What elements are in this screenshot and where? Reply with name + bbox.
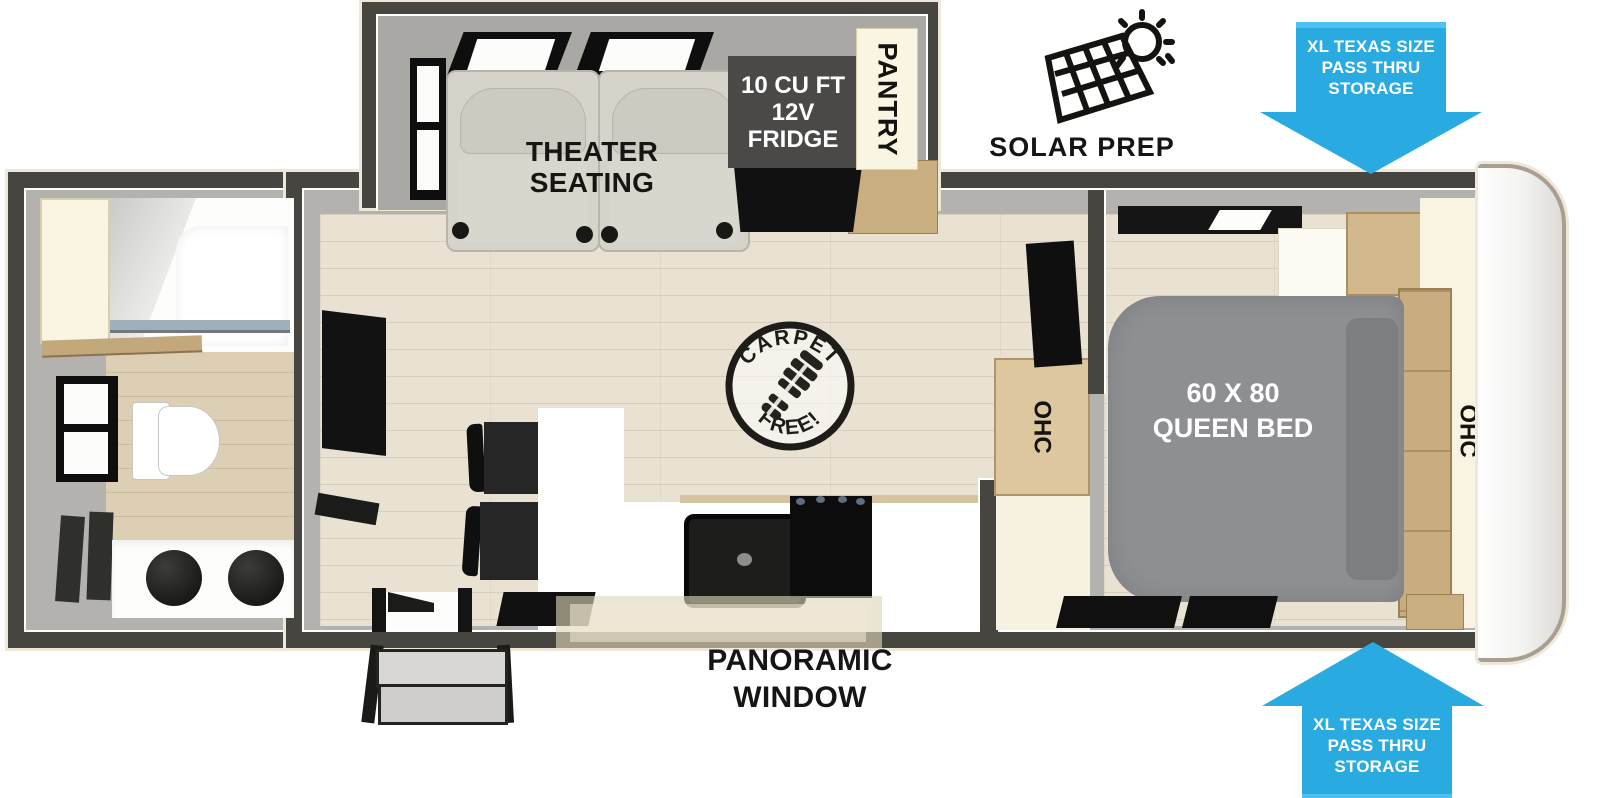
bedroom-bottom-cabinet — [1406, 594, 1464, 630]
bedroom-window — [1182, 596, 1278, 628]
stove — [790, 496, 872, 598]
queen-bed-line1: 60 X 80 — [1108, 376, 1358, 411]
shower — [106, 198, 294, 352]
front-cap — [1478, 164, 1566, 662]
solar-prep-label: SOLAR PREP — [982, 132, 1182, 162]
storage-bottom-line2: PASS THRU — [1302, 735, 1452, 756]
fridge-line1: 10 CU FT — [728, 72, 858, 99]
bedroom-window — [1056, 596, 1182, 628]
panoramic-line1: PANORAMIC — [640, 642, 960, 679]
bathroom-window — [56, 376, 118, 482]
bedroom-wardrobe — [1398, 288, 1452, 618]
dinette-chair — [468, 422, 542, 494]
bedroom-vent — [1118, 206, 1302, 234]
slideout-side-window — [410, 58, 446, 200]
panoramic-window-glass — [556, 596, 882, 648]
queen-bed-label: 60 X 80 QUEEN BED — [1108, 376, 1358, 446]
entry-door-post — [458, 588, 472, 632]
kitchen-ohc-label: OHC — [1028, 400, 1056, 453]
partition-lower — [978, 478, 998, 632]
queen-bed-line2: QUEEN BED — [1108, 411, 1358, 446]
recliner-foot — [576, 226, 593, 243]
bedroom-wardrobe-top — [1278, 228, 1350, 298]
carpet-free-badge: CARPET FREE! — [722, 318, 858, 454]
bedroom-ohc-corner-cabinet — [1346, 212, 1424, 296]
panoramic-window-label: PANORAMIC WINDOW — [640, 642, 960, 716]
entry-steps — [366, 645, 514, 723]
bed-pillow-area — [1346, 318, 1398, 580]
vanity-sink — [146, 550, 202, 606]
recliner-foot — [601, 226, 618, 243]
theater-seating-line1: THEATER — [486, 136, 698, 167]
kitchen-sink — [684, 514, 806, 608]
vanity-sink — [228, 550, 284, 606]
pantry-cabinet: PANTRY — [856, 28, 918, 170]
rv-floorplan: THEATER SEATING 10 CU FT 12V FRIDGE PANT… — [0, 0, 1600, 798]
recliner-foot — [716, 222, 733, 239]
storage-top-line2: PASS THRU — [1296, 57, 1446, 78]
solar-panel-icon — [1022, 6, 1182, 134]
recliner-foot — [452, 222, 469, 239]
theater-seating-label: THEATER SEATING — [486, 136, 698, 199]
shower-glass-door — [110, 320, 290, 330]
bedroom-mirror — [1026, 240, 1083, 367]
fridge-label-box: 10 CU FT 12V FRIDGE — [728, 56, 858, 168]
entry-door-post — [372, 588, 386, 632]
storage-arrow-top: XL TEXAS SIZE PASS THRU STORAGE — [1260, 22, 1482, 174]
storage-top-line1: XL TEXAS SIZE — [1296, 36, 1446, 57]
bathroom-cabinet — [40, 198, 110, 344]
storage-top-line3: STORAGE — [1296, 78, 1446, 99]
storage-arrow-bottom: XL TEXAS SIZE PASS THRU STORAGE — [1262, 642, 1484, 794]
kitchen-ohc-cabinet: OHC — [994, 358, 1090, 496]
fridge-line2: 12V — [728, 99, 858, 126]
theater-seating-line2: SEATING — [486, 167, 698, 198]
panoramic-line2: WINDOW — [640, 679, 960, 716]
dinette-chair — [464, 502, 540, 580]
partition-upper — [1088, 190, 1106, 394]
tv — [322, 310, 386, 456]
queen-bed — [1108, 296, 1404, 602]
toilet-bowl — [158, 406, 220, 476]
storage-bottom-line1: XL TEXAS SIZE — [1302, 714, 1452, 735]
fridge-base — [848, 160, 938, 234]
storage-bottom-line3: STORAGE — [1302, 756, 1452, 777]
fridge-line3: FRIDGE — [728, 126, 858, 153]
pantry-label: PANTRY — [872, 42, 903, 156]
fridge-front — [734, 166, 862, 232]
linen-slab — [86, 512, 113, 601]
